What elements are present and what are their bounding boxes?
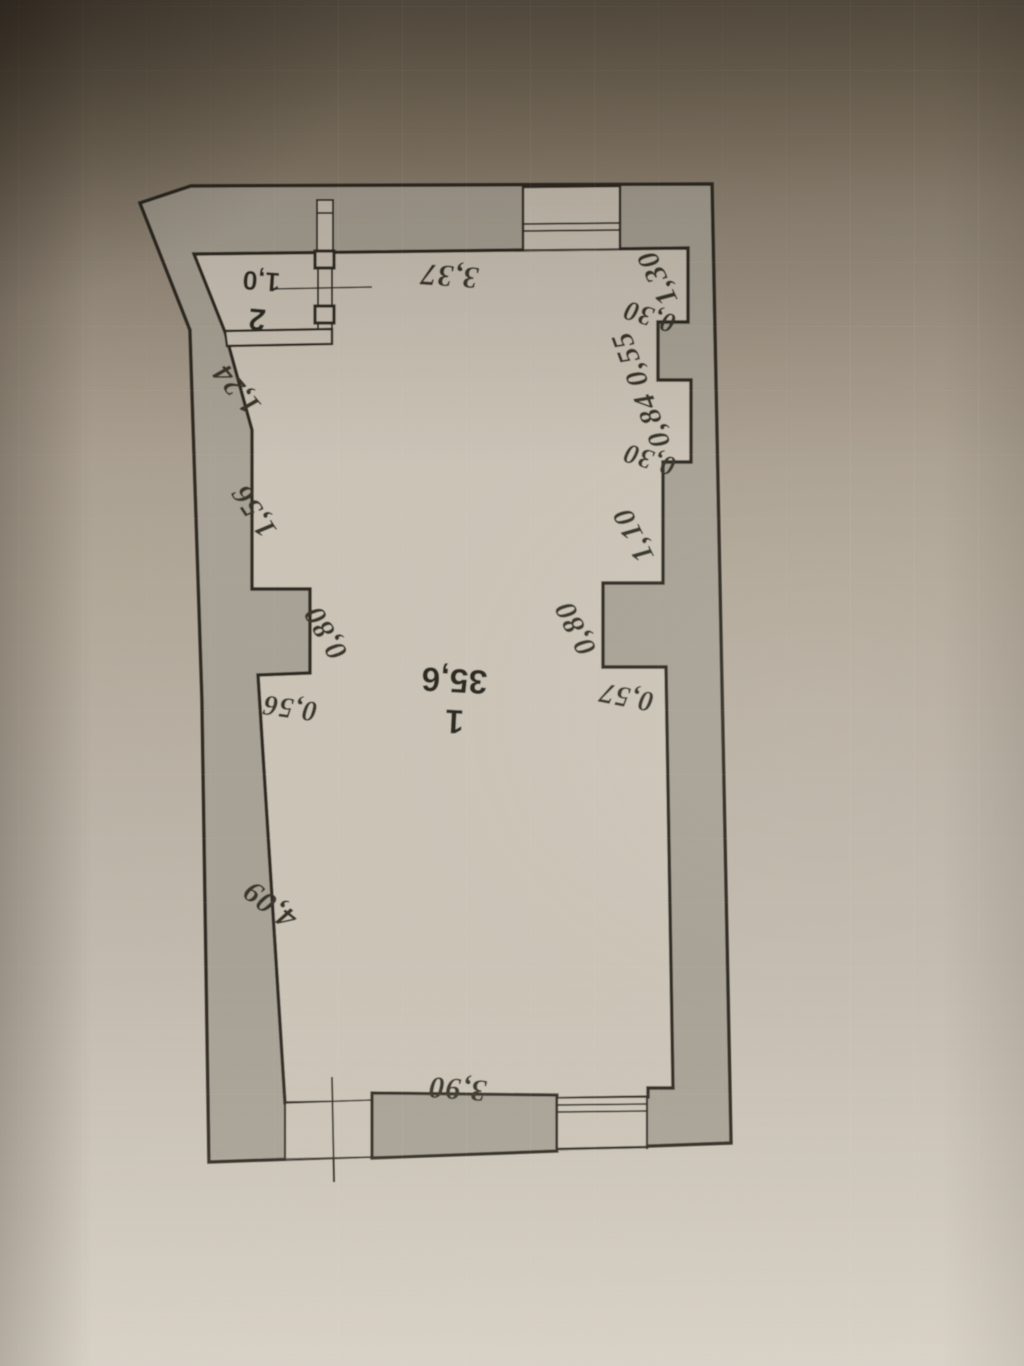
wall-slot — [317, 200, 333, 253]
door-opening — [285, 1100, 372, 1160]
room-1-area: 35,6 — [420, 659, 488, 700]
room-2-number: 2 — [247, 301, 267, 337]
room-2-area: 1,0 — [242, 265, 282, 298]
scale-label: М 1:100 — [422, 1363, 587, 1366]
window-bottom — [557, 1097, 648, 1151]
dim-top-wall: 3,37 — [418, 257, 480, 296]
floor-plan-photo: 35,6 1 1,0 2 3,37 1,30 0,30 0,55 0,84 0,… — [0, 0, 1024, 1366]
dim-bottom-wall: 3,90 — [427, 1070, 489, 1109]
room-1-number: 1 — [444, 702, 465, 741]
window-top — [523, 185, 620, 251]
floor-plan-drawing: 35,6 1 1,0 2 3,37 1,30 0,30 0,55 0,84 0,… — [0, 0, 1024, 1366]
